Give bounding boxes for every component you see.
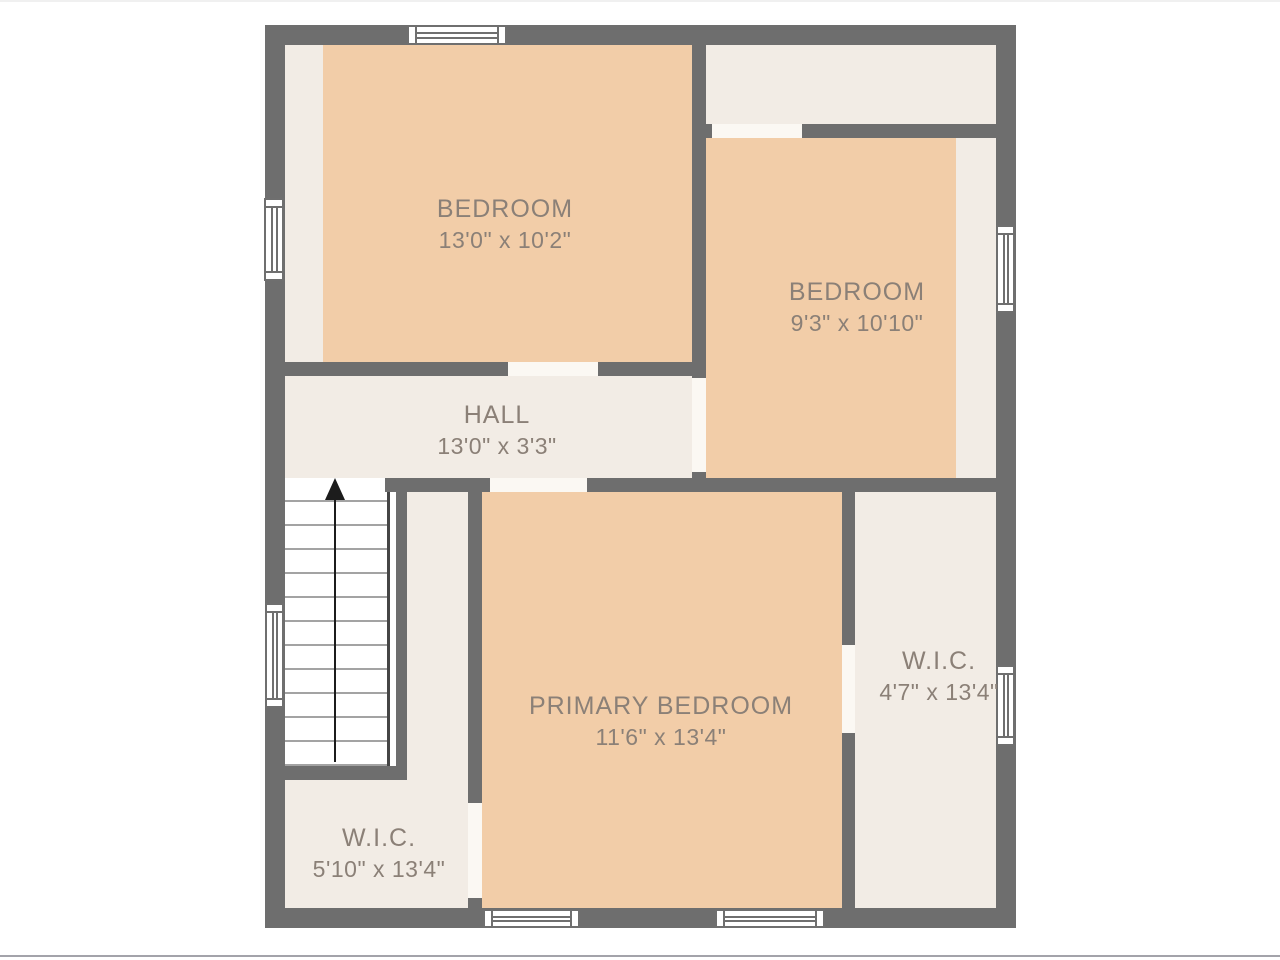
room-dimensions: 5'10" x 13'4": [313, 854, 446, 885]
room-name: W.I.C.: [313, 823, 446, 854]
wall-segment: [587, 478, 996, 492]
wall-segment: [996, 25, 1016, 928]
wall-segment: [265, 908, 1016, 928]
room-label: BEDROOM 13'0" x 10'2": [437, 194, 573, 256]
room-dimensions: 13'0" x 10'2": [437, 225, 573, 256]
door-opening: [490, 478, 587, 492]
door-opening: [842, 645, 855, 733]
window-symbol: [264, 198, 284, 281]
wall-segment: [265, 766, 407, 780]
room-name: BEDROOM: [437, 194, 573, 225]
stair-stringer-line: [387, 478, 390, 766]
window-symbol: [996, 225, 1015, 313]
door-opening: [712, 124, 802, 138]
door-opening: [508, 362, 598, 376]
door-opening: [692, 378, 706, 472]
window-symbol: [265, 603, 284, 708]
room-label: W.I.C. 4'7" x 13'4": [879, 646, 998, 708]
wall-segment: [598, 362, 692, 376]
page-top-divider: [0, 0, 1280, 2]
floorplan: BEDROOM 13'0" x 10'2" BEDROOM 9'3" x 10'…: [0, 0, 1280, 960]
room-name: BEDROOM: [789, 277, 925, 308]
wall-segment: [468, 898, 482, 908]
wall-segment: [842, 733, 855, 908]
room-label: BEDROOM 9'3" x 10'10": [789, 277, 925, 339]
wall-segment: [692, 45, 706, 378]
wall-segment: [692, 124, 712, 138]
room-dimensions: 11'6" x 13'4": [529, 722, 793, 753]
window-symbol: [996, 665, 1015, 746]
stairs-up-arrow-icon: [325, 478, 345, 500]
window-symbol: [407, 25, 507, 45]
room-dimensions: 13'0" x 3'3": [437, 431, 556, 462]
room-name: PRIMARY BEDROOM: [529, 691, 793, 722]
wall-segment: [468, 478, 482, 803]
room-dimensions: 9'3" x 10'10": [789, 308, 925, 339]
room-label: HALL 13'0" x 3'3": [437, 400, 556, 462]
window-symbol: [483, 909, 580, 928]
room-label: PRIMARY BEDROOM 11'6" x 13'4": [529, 691, 793, 753]
wall-segment: [265, 25, 1016, 45]
window-symbol: [715, 909, 825, 928]
page-bottom-divider: [0, 955, 1280, 957]
wall-segment: [285, 362, 508, 376]
wall-segment: [396, 478, 407, 780]
room-name: HALL: [437, 400, 556, 431]
room-label: W.I.C. 5'10" x 13'4": [313, 823, 446, 885]
wall-segment: [265, 25, 285, 928]
room-dimensions: 4'7" x 13'4": [879, 677, 998, 708]
room-name: W.I.C.: [879, 646, 998, 677]
wall-segment: [842, 478, 855, 645]
stairs-direction-line: [334, 498, 336, 762]
wall-segment: [802, 124, 996, 138]
door-opening: [468, 803, 482, 898]
